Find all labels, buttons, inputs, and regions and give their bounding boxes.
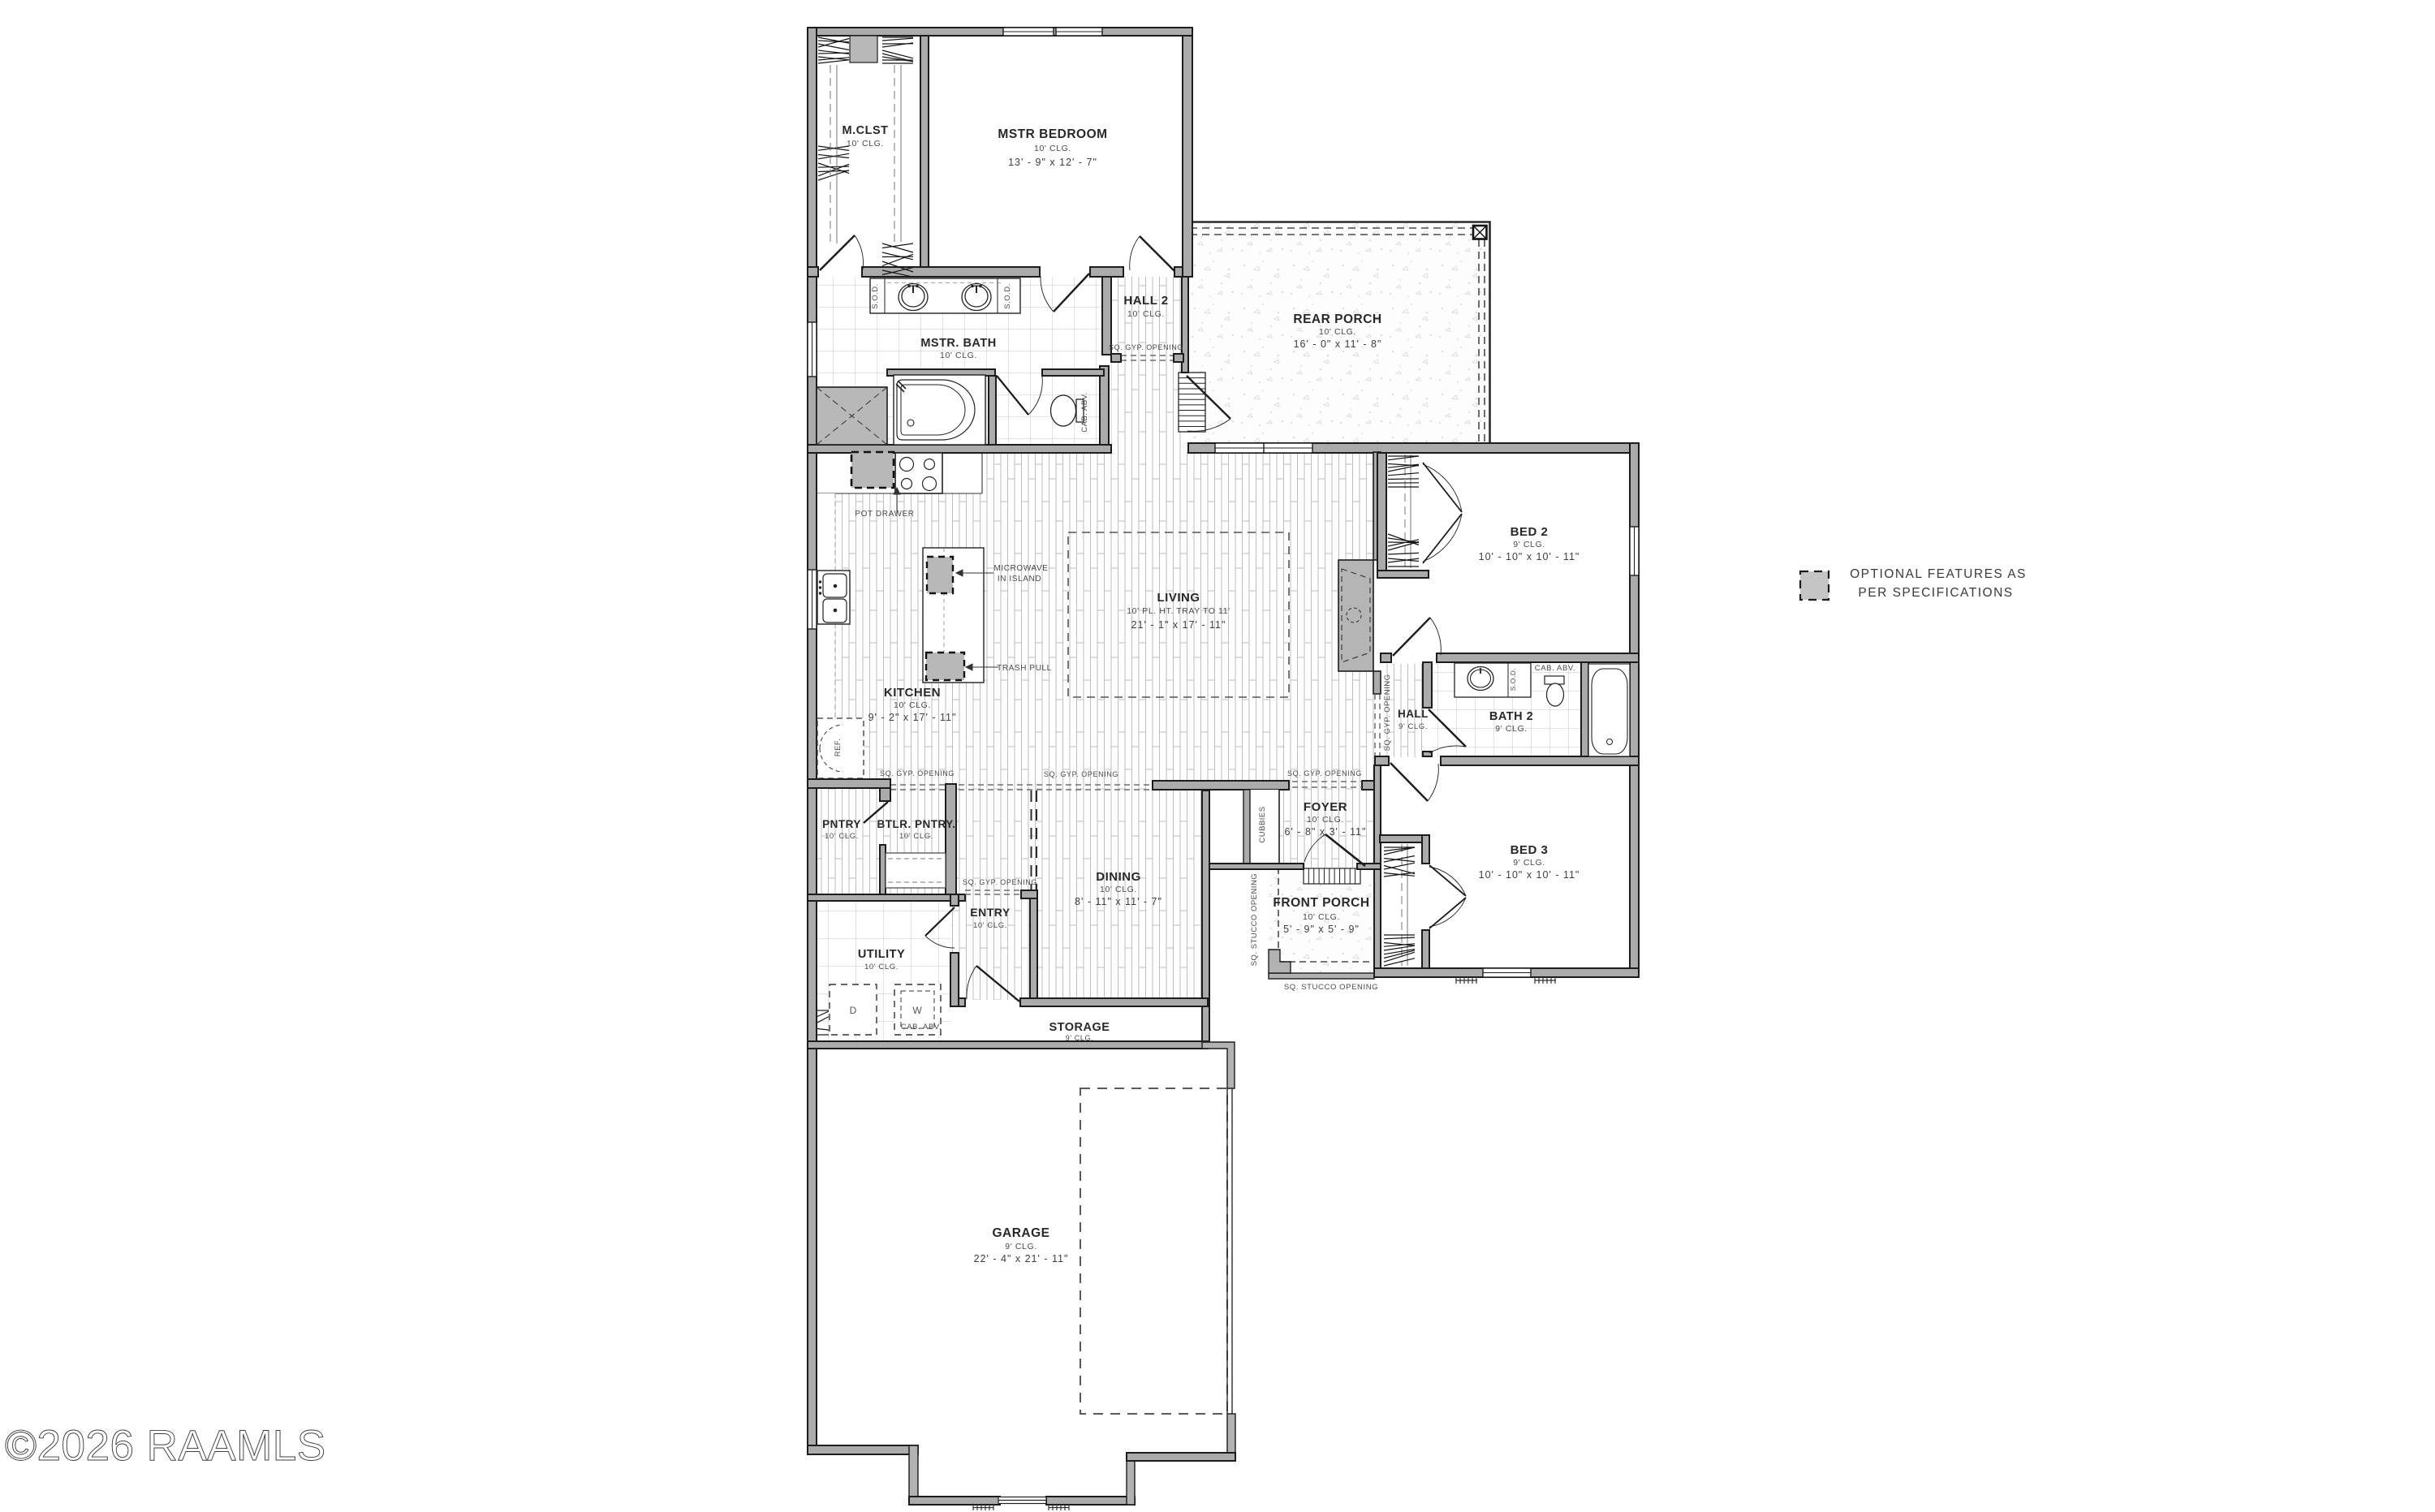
svg-text:10' CLG.: 10' CLG. [894,700,931,710]
svg-text:10' CLG.: 10' CLG. [899,832,933,841]
svg-text:MSTR. BATH: MSTR. BATH [920,337,996,350]
svg-text:10' PL. HT. TRAY TO 11': 10' PL. HT. TRAY TO 11' [1127,606,1230,616]
svg-text:ENTRY: ENTRY [970,906,1011,919]
svg-text:REAR PORCH: REAR PORCH [1293,312,1381,326]
svg-text:22' - 4" x 21' - 11": 22' - 4" x 21' - 11" [974,1253,1069,1264]
svg-text:10' CLG.: 10' CLG. [825,832,859,841]
svg-text:6' - 8" x 3' - 11": 6' - 8" x 3' - 11" [1285,826,1367,838]
svg-text:SQ. GYP. OPENING: SQ. GYP. OPENING [1287,769,1362,778]
svg-text:10' - 10" x 10' - 11": 10' - 10" x 10' - 11" [1479,551,1580,562]
svg-text:GARAGE: GARAGE [992,1226,1049,1240]
svg-text:HALL 2: HALL 2 [1123,294,1168,308]
svg-text:9' CLG.: 9' CLG. [1513,858,1545,868]
svg-text:CAB. ABV.: CAB. ABV. [1535,664,1575,673]
svg-text:SQ. STUCCO OPENING: SQ. STUCCO OPENING [1250,873,1259,967]
svg-text:M.CLST: M.CLST [843,124,889,137]
svg-text:10' - 10" x 10' - 11": 10' - 10" x 10' - 11" [1479,869,1580,881]
svg-text:D: D [850,1005,857,1016]
svg-text:POT DRAWER: POT DRAWER [855,510,914,519]
svg-text:9' CLG.: 9' CLG. [1513,540,1545,549]
svg-text:SQ. GYP. OPENING: SQ. GYP. OPENING [963,878,1037,886]
svg-text:10' CLG.: 10' CLG. [847,139,884,149]
svg-text:OPTIONAL FEATURES AS: OPTIONAL FEATURES AS [1850,567,2027,581]
svg-text:10' CLG.: 10' CLG. [1303,912,1340,922]
svg-text:10' CLG.: 10' CLG. [940,351,977,360]
svg-text:9' - 2" x 17' - 11": 9' - 2" x 17' - 11" [868,712,957,723]
svg-text:9' CLG.: 9' CLG. [1066,1034,1093,1042]
svg-text:10' CLG.: 10' CLG. [1034,144,1071,153]
svg-text:TRASH PULL: TRASH PULL [997,664,1052,673]
svg-text:SQ. GYP. OPENING: SQ. GYP. OPENING [880,769,955,778]
svg-text:S.O.D.: S.O.D. [871,283,880,309]
svg-text:10' CLG.: 10' CLG. [864,963,899,971]
svg-text:PNTRY: PNTRY [822,818,861,830]
svg-text:10' CLG.: 10' CLG. [1307,815,1344,825]
svg-text:10' CLG.: 10' CLG. [1100,885,1137,894]
svg-text:W: W [912,1005,922,1016]
svg-text:SQ. GYP. OPENING: SQ. GYP. OPENING [1383,674,1392,752]
svg-text:SQ. GYP. OPENING: SQ. GYP. OPENING [1109,343,1183,351]
svg-text:8' - 11" x 11' - 7": 8' - 11" x 11' - 7" [1075,896,1162,907]
svg-text:MICROWAVE: MICROWAVE [993,564,1048,573]
svg-text:MSTR BEDROOM: MSTR BEDROOM [998,127,1107,141]
svg-text:BED 2: BED 2 [1511,525,1549,539]
svg-text:CUBBIES: CUBBIES [1258,806,1267,842]
svg-text:S.O.D.: S.O.D. [1003,283,1012,309]
svg-text:16' - 0" x 11' - 8": 16' - 0" x 11' - 8" [1294,338,1382,350]
svg-text:10' CLG.: 10' CLG. [973,921,1007,930]
svg-text:FOYER: FOYER [1304,800,1347,814]
svg-text:STORAGE: STORAGE [1049,1021,1110,1034]
svg-text:SQ. STUCCO OPENING: SQ. STUCCO OPENING [1284,983,1378,992]
svg-text:SQ. GYP. OPENING: SQ. GYP. OPENING [1044,770,1118,778]
svg-text:21' - 1" x 17' - 11": 21' - 1" x 17' - 11" [1131,619,1226,631]
svg-text:PER SPECIFICATIONS: PER SPECIFICATIONS [1858,586,2013,600]
svg-text:13' - 9" x 12' - 7": 13' - 9" x 12' - 7" [1008,157,1097,168]
svg-text:CAB. ABV.: CAB. ABV. [1080,392,1089,433]
svg-text:UTILITY: UTILITY [858,948,905,961]
svg-text:REF.: REF. [834,739,843,757]
svg-text:KITCHEN: KITCHEN [884,686,941,700]
svg-text:LIVING: LIVING [1157,591,1200,605]
svg-text:5' - 9" x 5' - 9": 5' - 9" x 5' - 9" [1283,924,1360,935]
svg-text:©2026 RAAMLS: ©2026 RAAMLS [5,1422,326,1470]
svg-text:10' CLG.: 10' CLG. [1319,327,1356,337]
svg-text:S.O.D.: S.O.D. [1509,668,1517,691]
svg-text:10' CLG.: 10' CLG. [1127,309,1165,319]
svg-text:CAB. ABV.: CAB. ABV. [901,1023,942,1032]
svg-text:DINING: DINING [1096,870,1141,884]
svg-text:BTLR. PNTRY.: BTLR. PNTRY. [877,818,956,830]
svg-text:BATH 2: BATH 2 [1489,710,1533,723]
svg-text:9' CLG.: 9' CLG. [1005,1242,1036,1251]
svg-text:9' CLG.: 9' CLG. [1495,724,1527,734]
svg-text:IN ISLAND: IN ISLAND [998,575,1041,584]
svg-text:9' CLG.: 9' CLG. [1399,722,1428,731]
svg-text:FRONT PORCH: FRONT PORCH [1273,896,1369,910]
svg-text:BED 3: BED 3 [1511,843,1549,857]
svg-text:HALL: HALL [1398,708,1429,720]
